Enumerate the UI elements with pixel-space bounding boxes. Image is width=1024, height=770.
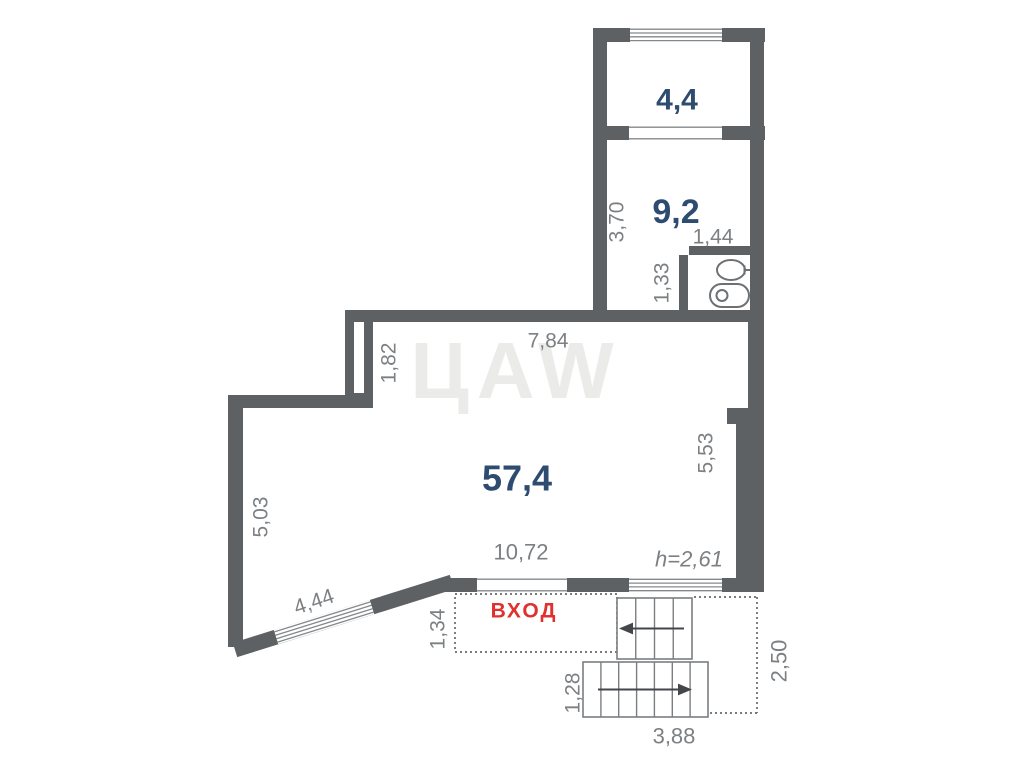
- floor-plan-page: ЦAW: [0, 0, 1024, 770]
- pillar-slot: [354, 322, 364, 393]
- wall-step: [228, 395, 373, 408]
- dimension-10-72: 10,72: [493, 540, 548, 565]
- dimension-1-44: 1,44: [693, 226, 734, 249]
- toilet-flush-icon: [717, 290, 728, 301]
- dimension-1-33: 1,33: [651, 263, 674, 304]
- wall-main-top: [345, 310, 764, 322]
- dimension-5-53: 5,53: [695, 433, 718, 474]
- window-top-room: [630, 28, 722, 42]
- stairs-upper-flight: [617, 598, 692, 659]
- wall-column-right: [750, 28, 764, 322]
- sink-icon: [717, 260, 745, 280]
- dimension-3-88: 3,88: [653, 724, 696, 749]
- room-area-57-4: 57,4: [482, 458, 552, 499]
- dimension-3-70: 3,70: [606, 202, 629, 243]
- room-area-4-4: 4,4: [656, 84, 698, 117]
- window-bottom-wall: [629, 578, 722, 592]
- wall-right-upper: [748, 322, 764, 414]
- window-glass: [630, 28, 722, 42]
- opening-room-divider: [629, 126, 722, 140]
- dimension-2-50: 2,50: [767, 640, 792, 683]
- window-glass: [629, 578, 722, 592]
- wall-right-lower: [736, 412, 764, 592]
- door-gap: [477, 578, 567, 592]
- floor-plan: ЦAW: [0, 0, 1024, 770]
- wall-left: [228, 395, 243, 647]
- dimension-1-34: 1,34: [427, 608, 450, 649]
- opening-gap: [629, 126, 722, 140]
- stairs-lower-flight: [583, 662, 708, 717]
- watermark-text: ЦAW: [410, 326, 621, 415]
- dimension-1-28: 1,28: [562, 673, 585, 714]
- wall-column-left: [593, 28, 607, 322]
- entrance-label: ВХОД: [491, 600, 558, 623]
- bathroom-fixtures: [710, 260, 750, 307]
- dimension-5-03: 5,03: [250, 497, 273, 538]
- dimension-ceiling-height: h=2,61: [655, 547, 723, 572]
- dimension-1-82: 1,82: [378, 343, 401, 384]
- entrance-door-opening: [477, 578, 567, 592]
- dimension-7-84: 7,84: [528, 330, 569, 353]
- wall-pilaster-bump: [727, 408, 748, 424]
